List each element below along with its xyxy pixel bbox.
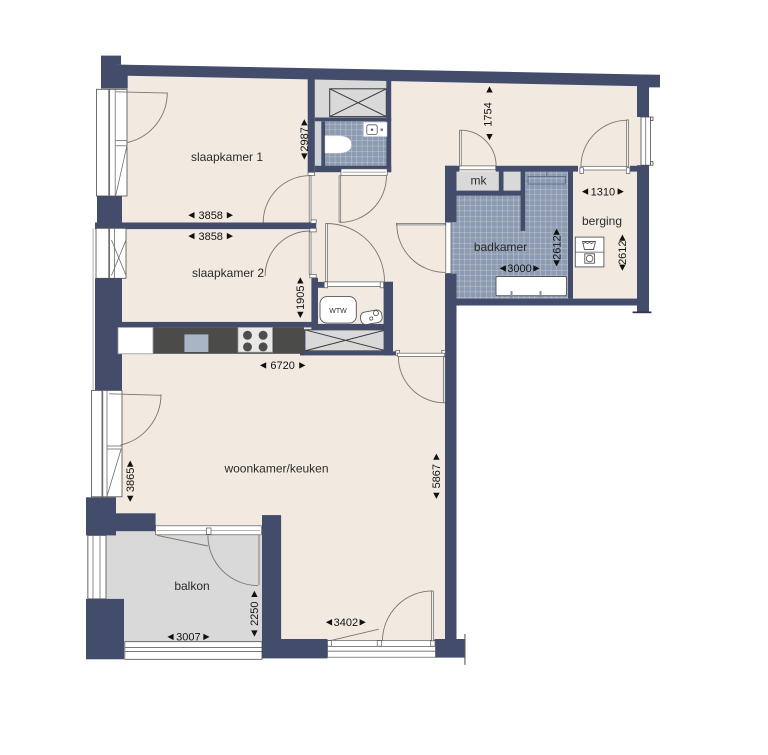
svg-text:3865: 3865 <box>125 468 137 492</box>
svg-text:woonkamer/keuken: woonkamer/keuken <box>223 462 328 476</box>
svg-text:3858: 3858 <box>198 231 222 243</box>
svg-text:balkon: balkon <box>174 579 209 593</box>
svg-text:2987: 2987 <box>299 127 311 151</box>
svg-text:WTW: WTW <box>329 308 347 315</box>
svg-text:3858: 3858 <box>198 210 222 222</box>
svg-text:2250: 2250 <box>249 601 261 625</box>
svg-text:1754: 1754 <box>483 102 495 126</box>
svg-text:5867: 5867 <box>431 464 443 488</box>
svg-text:6720: 6720 <box>270 360 294 372</box>
svg-text:mk: mk <box>471 174 488 188</box>
svg-text:slaapkamer 2: slaapkamer 2 <box>192 266 264 280</box>
svg-text:1310: 1310 <box>591 186 615 198</box>
svg-text:2612: 2612 <box>551 235 563 259</box>
svg-text:3000: 3000 <box>507 263 531 275</box>
svg-text:badkamer: badkamer <box>474 240 527 254</box>
svg-text:3007: 3007 <box>176 632 200 644</box>
svg-text:berging: berging <box>582 214 622 228</box>
svg-text:3402: 3402 <box>334 617 358 629</box>
svg-text:1905: 1905 <box>295 285 307 309</box>
svg-text:2612: 2612 <box>617 240 629 264</box>
svg-text:slaapkamer 1: slaapkamer 1 <box>191 150 263 164</box>
